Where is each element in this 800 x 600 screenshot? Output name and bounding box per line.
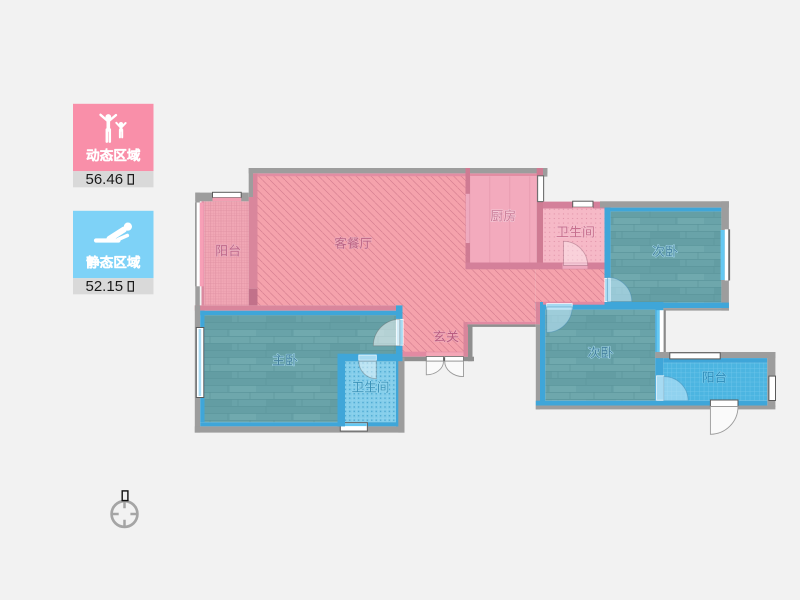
svg-text:56.46: 56.46 bbox=[86, 171, 124, 188]
svg-text:52.15: 52.15 bbox=[86, 278, 124, 295]
